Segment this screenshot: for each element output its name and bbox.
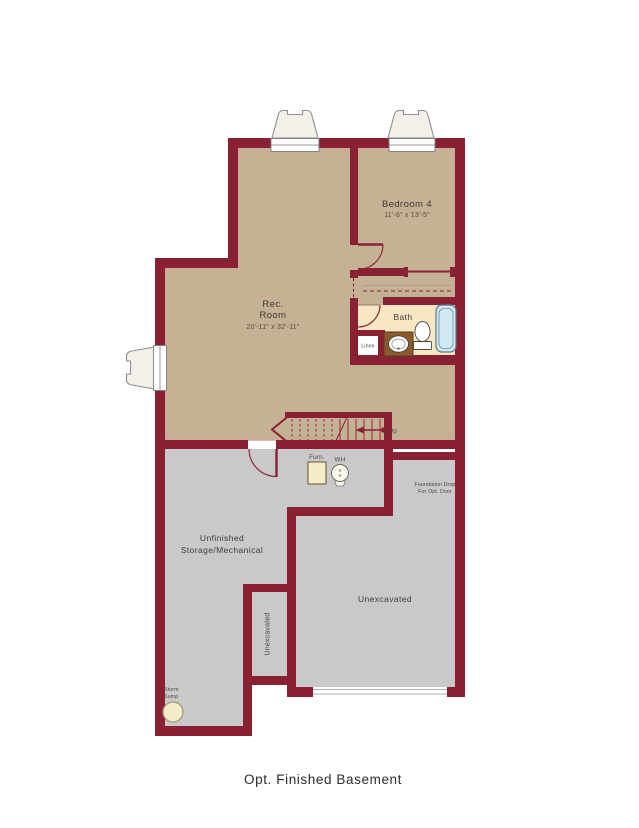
finished-floor-area: [165, 148, 455, 440]
unfinished-label-line1: Unfinished: [200, 533, 244, 543]
storm-sump-label-line1: Storm: [164, 687, 179, 693]
floor-plan-page: Up: [0, 0, 639, 828]
wall-finished-bottom-right: [276, 440, 465, 449]
wall-finished-bottom-left: [155, 440, 248, 449]
wall-unexc-bottom-right-block: [447, 687, 465, 697]
wall-storage-unexc-divider: [384, 449, 393, 516]
bathtub: [436, 305, 456, 352]
vanity-sink: [384, 332, 413, 356]
wall-step: [155, 258, 238, 268]
wall-top-mid: [319, 138, 389, 148]
wall-bath-top: [383, 297, 455, 305]
window-well-top-1: [272, 111, 318, 139]
sink-drain: [397, 347, 399, 349]
wall-unexc-step: [287, 507, 393, 516]
furnace-label: Furn.: [309, 454, 325, 461]
recroom-label-line2: Room: [260, 310, 287, 321]
unexcavated-main-label: Unexcavated: [358, 594, 412, 604]
storm-sump: [163, 702, 183, 722]
toilet: [414, 322, 432, 350]
window-well-left: [127, 347, 158, 390]
storm-sump-label-line2: Sump: [164, 694, 178, 700]
recroom-dims: 20'-11" x 32'-11": [246, 324, 300, 331]
up-label: Up: [389, 428, 398, 435]
furnace: [308, 462, 326, 484]
bedroom4-dims: 11'-6" x 13'-5": [384, 212, 430, 219]
bath-label: Bath: [393, 312, 412, 322]
wall-stairs-top: [285, 412, 392, 418]
wall-unexcavated-top: [384, 452, 465, 460]
wall-storage-bottom: [155, 726, 252, 736]
unexcavated-strip-label: Unexcavated: [265, 612, 272, 655]
wall-strip-bottom: [243, 676, 296, 685]
bedroom4-label: Bedroom 4: [382, 199, 432, 210]
floors: [165, 148, 455, 726]
foundation-drop-line1: Foundation Drop: [415, 482, 456, 488]
wall-unexc-left: [287, 507, 296, 687]
foundation-drop-line2: For Opt. Door: [418, 489, 452, 495]
wall-strip-left: [243, 584, 252, 736]
wall-left-upper: [155, 258, 165, 346]
wall-bedroom-divider: [350, 148, 358, 245]
wall-recroom-upper-left: [228, 138, 238, 268]
water-heater-label: WH: [335, 457, 346, 464]
linen-label: Linen: [361, 344, 374, 350]
wall-closet-top: [358, 268, 406, 276]
window-well-top-2: [388, 111, 434, 139]
floor-plan-svg: Up: [0, 0, 639, 828]
unfinished-label-line2: Storage/Mechanical: [181, 545, 263, 555]
recroom-label-line1: Rec.: [262, 299, 283, 310]
page-title: Opt. Finished Basement: [244, 772, 402, 787]
wall-divider-stub: [350, 270, 358, 278]
wall-unexc-bottom-left-block: [287, 687, 313, 697]
foundation-drop-opening: [313, 687, 447, 697]
wall-right-outer: [455, 138, 465, 697]
